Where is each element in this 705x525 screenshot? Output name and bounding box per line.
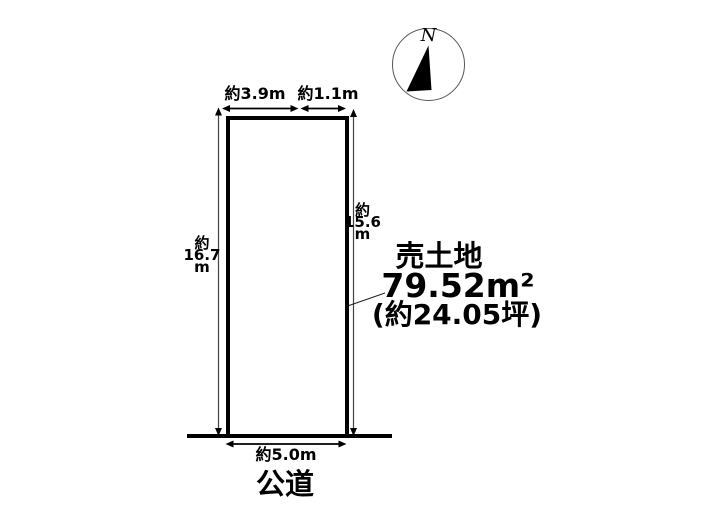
- dim-label-top-right: 約1.1m: [288, 86, 368, 102]
- compass-north-label: N: [410, 26, 447, 45]
- dim-line-top-left: [222, 105, 299, 112]
- dim-label-bottom: 約5.0m: [246, 447, 326, 463]
- land-plot-diagram: N 約3.9m 約1.1m 約 16.7 m 約 15.6 m 約5.0m 売土…: [0, 0, 705, 525]
- diagram-linework: [0, 0, 705, 525]
- dim-line-right: [350, 109, 357, 436]
- dim-label-right: 約 15.6 m: [340, 204, 385, 240]
- compass-needle-icon: [407, 46, 432, 92]
- dim-label-top-left: 約3.9m: [215, 86, 295, 102]
- road-line: [187, 434, 392, 438]
- road-label: 公道: [225, 469, 345, 500]
- dim-label-left: 約 16.7 m: [180, 237, 224, 273]
- dim-line-top-right: [301, 105, 347, 112]
- property-area-tsubo: (約24.05坪): [357, 301, 557, 329]
- plot-outline: [226, 116, 349, 437]
- property-area-sqm: 79.52m²: [368, 270, 548, 301]
